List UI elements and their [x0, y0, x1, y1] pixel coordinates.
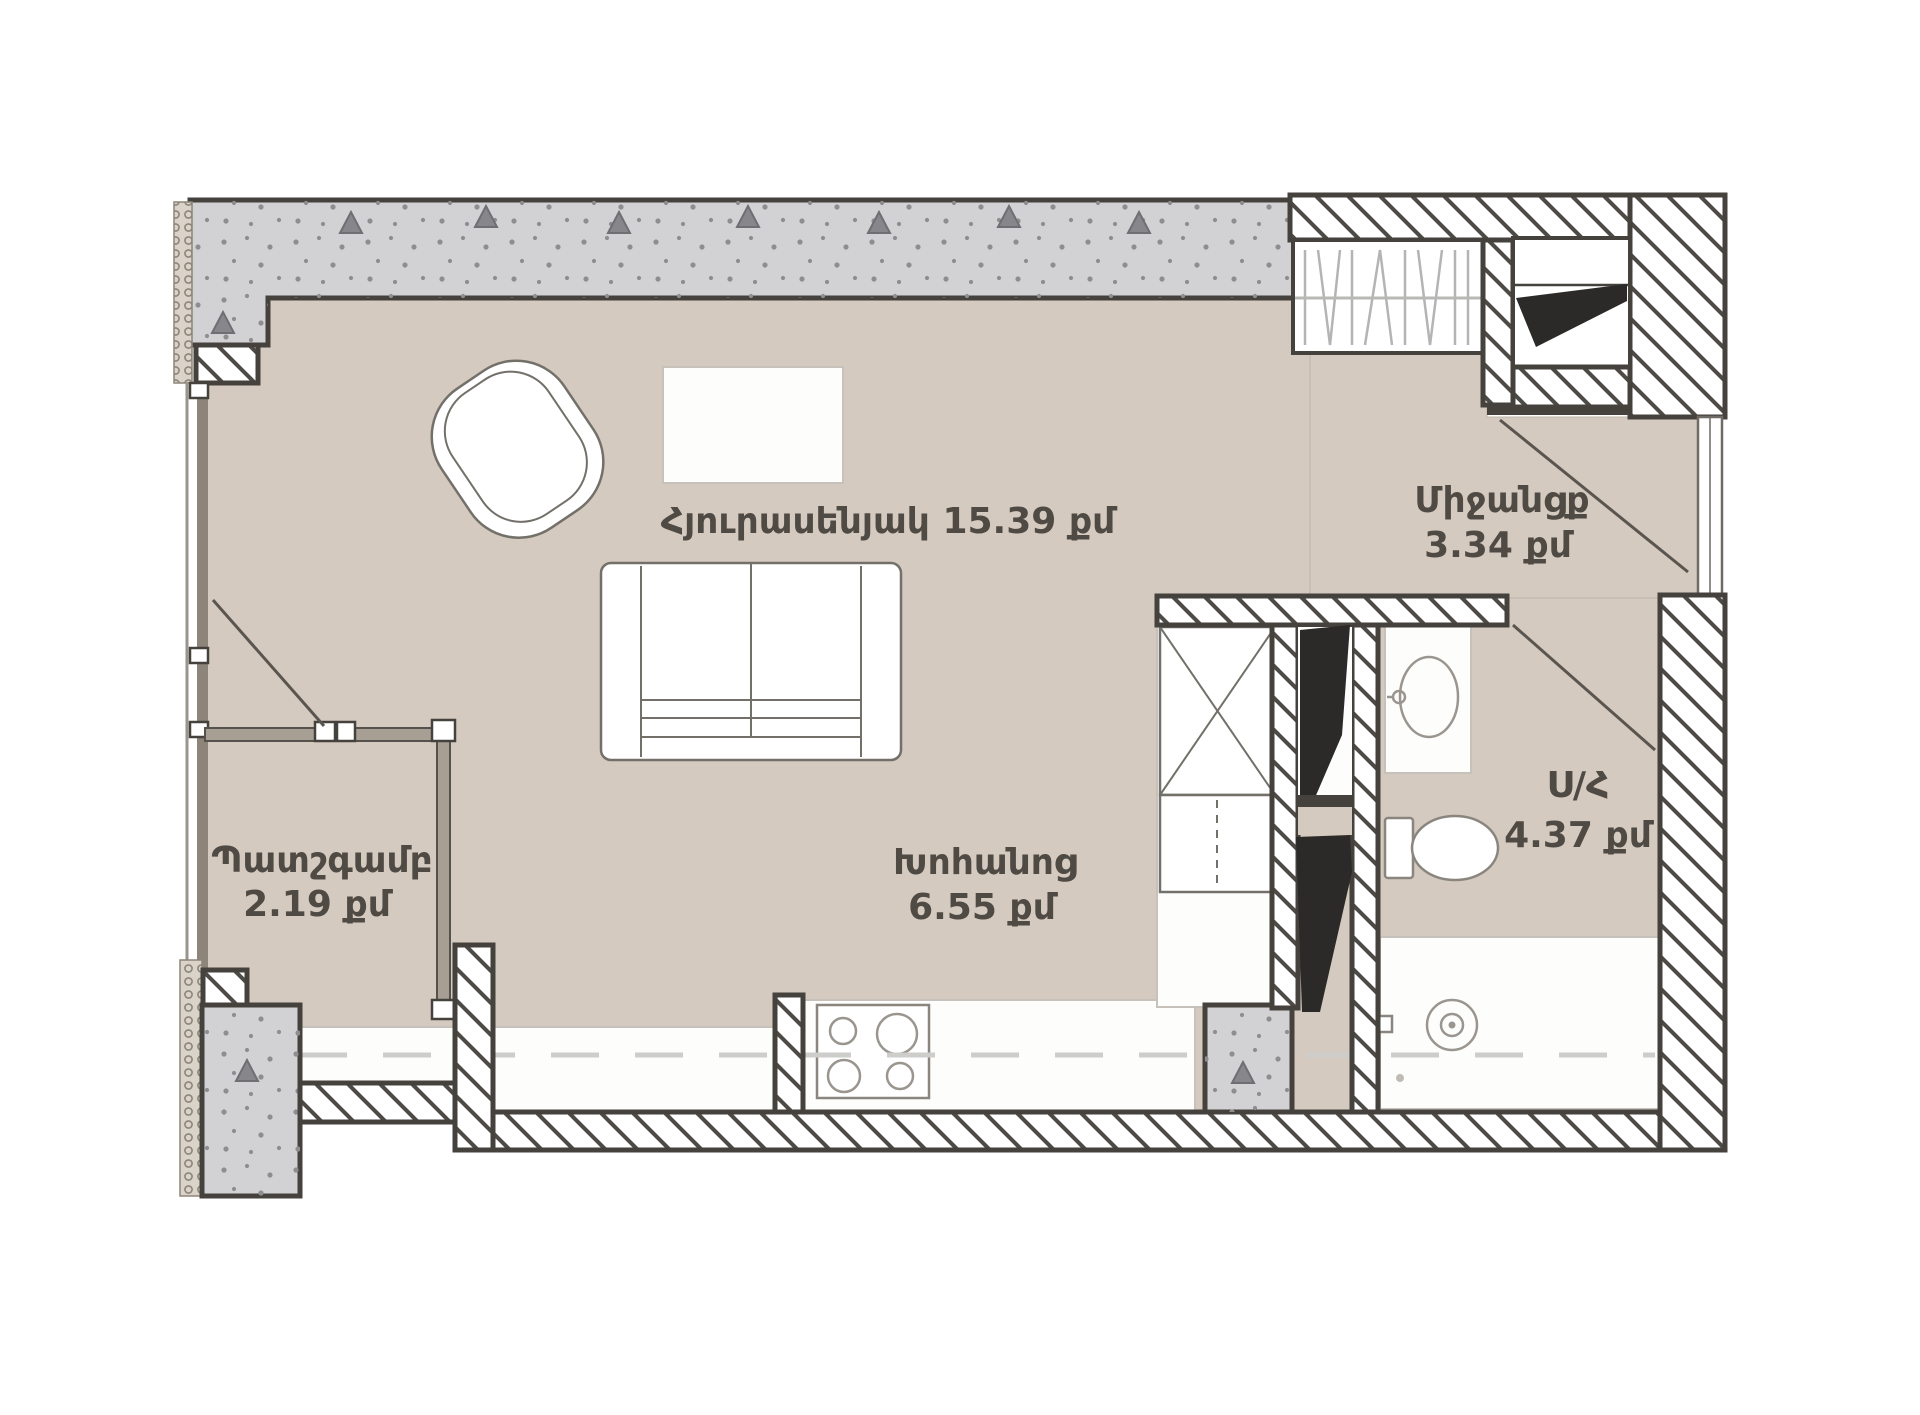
kitchen-cabinet — [1160, 795, 1275, 892]
right-exterior-wall — [1660, 595, 1725, 1150]
wall-block-balcony — [203, 970, 247, 1006]
worktop-left — [493, 1027, 775, 1112]
sink — [1385, 623, 1471, 773]
room-area-kitchen: 6.55 քմ — [908, 887, 1059, 928]
entrance-door — [1513, 238, 1630, 367]
floor-plan-page: Հյուրասենյակ 15.39 քմ Միջանցք 3.34 քմ Պա… — [0, 0, 1920, 1415]
counter-wall-stub — [775, 995, 803, 1112]
corridor-window — [1698, 417, 1722, 598]
room-label-corridor: Միջանցք — [1414, 480, 1589, 521]
entry-corner-wall — [1630, 195, 1725, 417]
insulation-strip-bottom-left — [180, 960, 202, 1196]
kitchen-top-wall — [1157, 596, 1507, 625]
wardrobe — [1293, 240, 1483, 353]
bathroom-left-wall — [1352, 625, 1378, 1112]
entry-top-wall — [1290, 195, 1637, 240]
fridge-unit — [1160, 627, 1275, 795]
stove — [817, 1005, 929, 1098]
insulation-strip-top-left — [174, 202, 192, 383]
floor-plan-drawing: Հյուրասենյակ 15.39 քմ Միջանցք 3.34 քմ Պա… — [0, 0, 1920, 1415]
room-area-bathroom: 4.37 քմ — [1504, 815, 1655, 856]
entry-threshold — [1487, 405, 1630, 415]
wardrobe-side-wall — [1483, 240, 1513, 405]
room-label-living: Հյուրասենյակ 15.39 քմ — [661, 501, 1118, 542]
bottom-exterior-wall — [493, 1112, 1725, 1150]
room-area-balcony: 2.19 քմ — [243, 884, 394, 925]
room-area-corridor: 3.34 քմ — [1424, 525, 1575, 566]
tv-stand — [663, 367, 843, 483]
room-label-balcony: Պատշգամբ — [211, 840, 433, 881]
balcony-bottom-wall — [300, 1083, 455, 1122]
shaft-wall-left — [1272, 625, 1298, 1008]
concrete-pillar-right — [1205, 1005, 1292, 1112]
entry-lower-wall — [1513, 367, 1630, 407]
concrete-pillar-left — [202, 1005, 300, 1196]
room-label-bathroom: Ս/Հ — [1547, 765, 1610, 806]
toilet — [1385, 816, 1498, 880]
wall-block-top-left — [196, 345, 258, 383]
bathroom-wet-zone — [1380, 937, 1662, 1109]
room-label-kitchen: Խոհանոց — [893, 842, 1077, 883]
sofa — [601, 563, 901, 760]
wall-step-balcony-kitchen — [455, 945, 493, 1150]
